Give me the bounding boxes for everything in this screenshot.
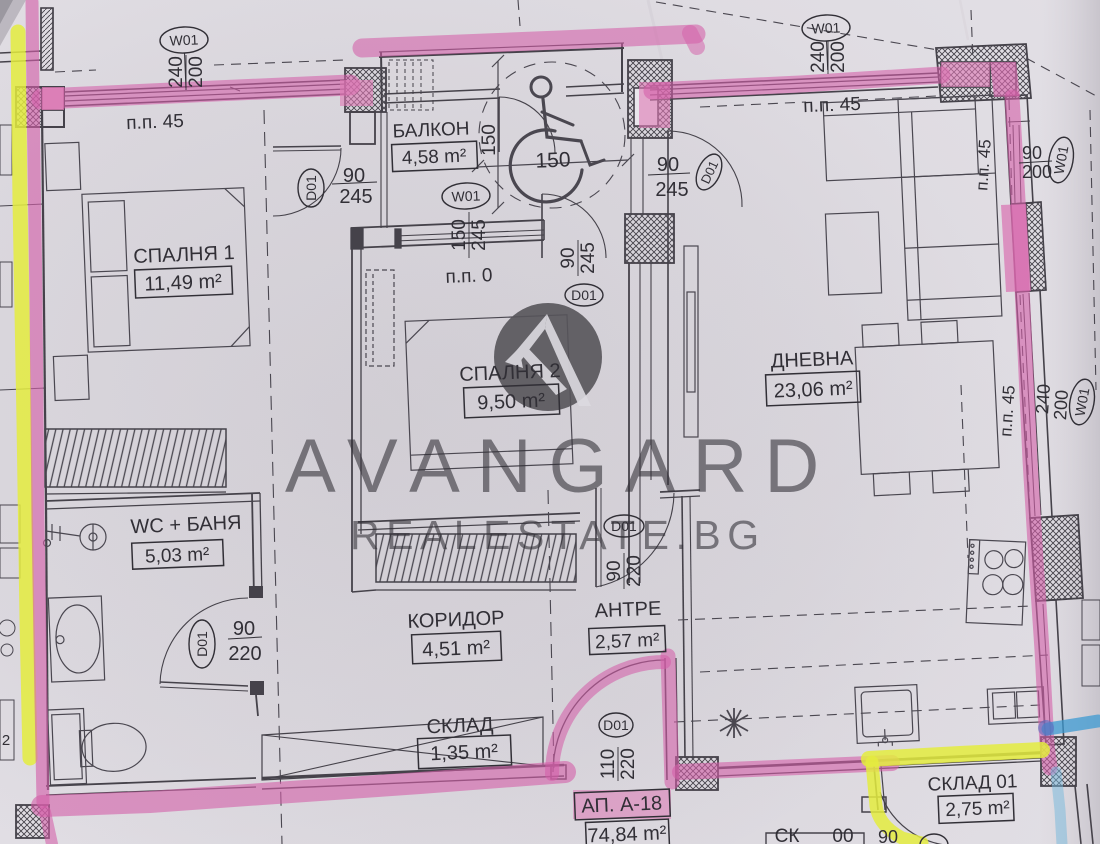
svg-text:200: 200 — [828, 41, 849, 73]
svg-text:п.п. 0: п.п. 0 — [445, 265, 493, 288]
svg-text:ДНЕВНА: ДНЕВНА — [770, 347, 854, 372]
svg-text:74,84 m²: 74,84 m² — [587, 822, 667, 844]
svg-text:D01: D01 — [611, 518, 637, 534]
svg-text:АНТРЕ: АНТРЕ — [594, 598, 662, 623]
svg-text:150: 150 — [535, 148, 571, 172]
svg-text:п.п. 45: п.п. 45 — [996, 385, 1019, 438]
svg-text:245: 245 — [339, 186, 372, 208]
svg-text:90: 90 — [604, 560, 625, 581]
svg-text:200: 200 — [186, 56, 207, 88]
svg-text:п.п. 45: п.п. 45 — [803, 94, 861, 117]
svg-text:4,51 m²: 4,51 m² — [422, 637, 491, 662]
svg-text:WC + БАНЯ: WC + БАНЯ — [130, 512, 242, 538]
svg-text:D01: D01 — [303, 175, 319, 201]
svg-text:СПАЛНЯ 1: СПАЛНЯ 1 — [133, 242, 235, 268]
svg-text:п.п. 45: п.п. 45 — [972, 139, 995, 192]
svg-text:4,58 m²: 4,58 m² — [402, 146, 467, 170]
svg-text:110: 110 — [598, 749, 619, 779]
svg-text:2,75 m²: 2,75 m² — [945, 798, 1010, 822]
svg-text:245: 245 — [578, 242, 599, 274]
svg-text:200: 200 — [1050, 389, 1072, 420]
svg-text:5,03 m²: 5,03 m² — [145, 544, 210, 568]
svg-text:СК: СК — [775, 826, 800, 844]
svg-text:150: 150 — [479, 124, 500, 156]
svg-text:245: 245 — [469, 219, 490, 251]
svg-text:11,49 m²: 11,49 m² — [144, 270, 223, 295]
svg-text:220: 220 — [618, 748, 639, 780]
svg-text:АП. А-18: АП. А-18 — [581, 792, 663, 817]
svg-text:220: 220 — [228, 643, 261, 665]
svg-text:W01: W01 — [811, 19, 841, 36]
svg-text:240: 240 — [808, 41, 829, 73]
svg-text:БАЛКОН: БАЛКОН — [392, 118, 470, 142]
svg-text:9,50 m²: 9,50 m² — [477, 390, 546, 415]
svg-text:AVANGARD: AVANGARD — [285, 424, 836, 509]
svg-text:90: 90 — [1022, 143, 1042, 163]
svg-text:2: 2 — [2, 732, 10, 749]
svg-text:245: 245 — [655, 179, 688, 201]
svg-text:240: 240 — [166, 56, 187, 88]
svg-text:REALESTATE.BG: REALESTATE.BG — [350, 512, 766, 558]
svg-text:90: 90 — [657, 154, 679, 176]
svg-text:СКЛАД: СКЛАД — [426, 714, 494, 739]
svg-text:90: 90 — [878, 827, 898, 844]
svg-text:D01: D01 — [194, 631, 210, 657]
svg-text:D01: D01 — [571, 287, 597, 303]
svg-text:90: 90 — [558, 247, 579, 268]
svg-text:90: 90 — [233, 618, 255, 640]
svg-text:150: 150 — [449, 219, 470, 251]
svg-text:D01: D01 — [603, 717, 629, 733]
svg-text:W01: W01 — [451, 187, 481, 204]
svg-text:СПАЛНЯ 2: СПАЛНЯ 2 — [459, 360, 561, 386]
svg-text:СКЛАД 01: СКЛАД 01 — [927, 771, 1018, 796]
svg-text:п.п. 45: п.п. 45 — [126, 111, 184, 134]
svg-text:00: 00 — [832, 826, 853, 844]
svg-text:23,06 m²: 23,06 m² — [773, 377, 853, 402]
svg-text:W01: W01 — [169, 31, 199, 48]
svg-text:2,57 m²: 2,57 m² — [595, 630, 660, 654]
svg-text:1,35 m²: 1,35 m² — [430, 740, 499, 765]
svg-text:220: 220 — [624, 555, 645, 587]
svg-text:200: 200 — [1022, 162, 1052, 182]
svg-text:КОРИДОР: КОРИДОР — [407, 607, 505, 633]
